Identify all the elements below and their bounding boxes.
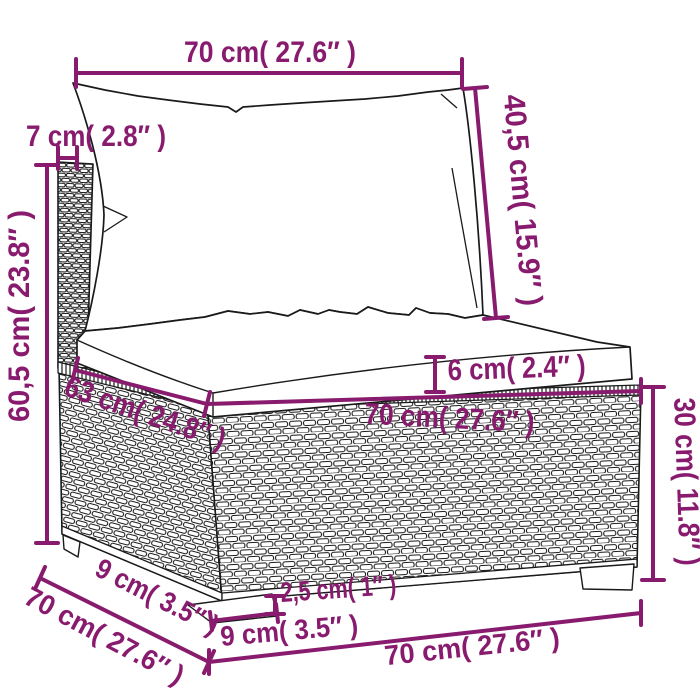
label-total-height: 60,5 cm( 23.8″ ) — [3, 210, 36, 422]
dim-line-base-height — [642, 387, 664, 580]
label-seat-cushion-thickness: 6 cm( 2.4″ ) — [447, 350, 586, 388]
label-base-height: 30 cm( 11.8″ ) — [667, 397, 700, 566]
label-base-front-width: 70 cm( 27.6″ ) — [383, 622, 561, 671]
label-back-cushion-height: 40,5 cm( 15.9″ ) — [497, 93, 548, 307]
dim-line-total-height — [36, 165, 58, 543]
diagram-canvas: 70 cm( 27.6″ ) 7 cm( 2.8″ ) 40,5 cm( 15.… — [0, 0, 700, 700]
label-top-width: 70 cm( 27.6″ ) — [184, 36, 356, 69]
label-back-depth: 7 cm( 2.8″ ) — [26, 120, 166, 153]
foot-front-right — [580, 564, 634, 590]
dimension-diagram: 70 cm( 27.6″ ) 7 cm( 2.8″ ) 40,5 cm( 15.… — [0, 0, 700, 700]
